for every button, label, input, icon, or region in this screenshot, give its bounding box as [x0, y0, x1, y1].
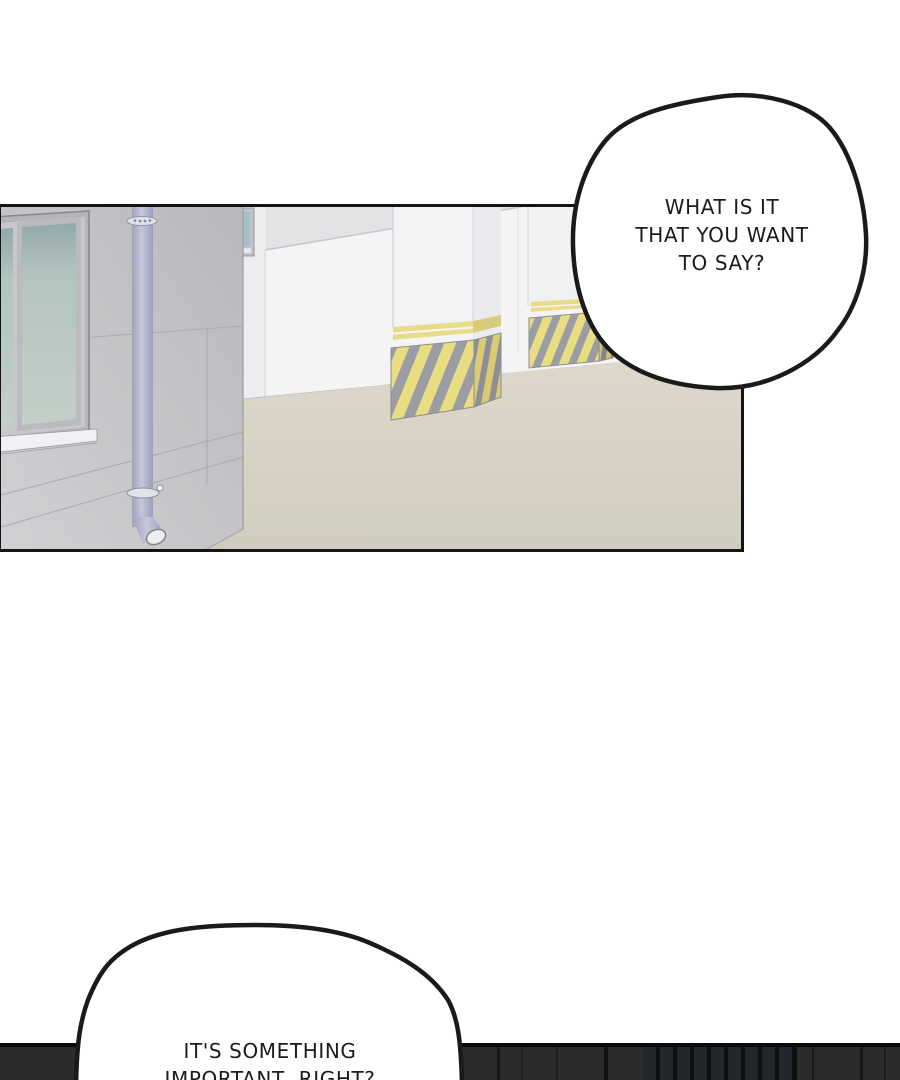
- speech-bubble-bottom-text: IT'S SOMETHING IMPORTANT, RIGHT?: [90, 1037, 450, 1080]
- bubble-line: IMPORTANT, RIGHT?: [90, 1065, 450, 1080]
- wall-seam: [793, 1047, 797, 1080]
- hazard-stripes-side: [474, 333, 501, 407]
- window-pane-left: [1, 228, 13, 431]
- hazard-pillar-near: [391, 207, 501, 420]
- wall-seam: [860, 1047, 863, 1080]
- pipe-bracket-top: [127, 217, 157, 226]
- bubble-line: IT'S SOMETHING: [90, 1037, 450, 1065]
- comic-page: WHAT IS IT THAT YOU WANT TO SAY? IT'S SO…: [0, 0, 900, 1080]
- wall-seam: [556, 1047, 558, 1080]
- pipe-bracket-mid: [127, 488, 159, 498]
- basement-window: [1, 211, 97, 455]
- wall-seam: [604, 1047, 608, 1080]
- bubble-line: THAT YOU WANT: [572, 221, 872, 249]
- wall-seam: [884, 1047, 886, 1080]
- bubble-line: WHAT IS IT: [572, 193, 872, 221]
- bubble-line: TO SAY?: [572, 249, 872, 277]
- hazard-stripes-front: [391, 340, 474, 420]
- speech-bubble-top-text: WHAT IS IT THAT YOU WANT TO SAY?: [572, 193, 872, 277]
- wall-seam: [497, 1047, 500, 1080]
- wall-seam: [521, 1047, 523, 1080]
- window-pane-right: [22, 223, 76, 425]
- wall-seam: [812, 1047, 814, 1080]
- dark-door: [643, 1047, 793, 1080]
